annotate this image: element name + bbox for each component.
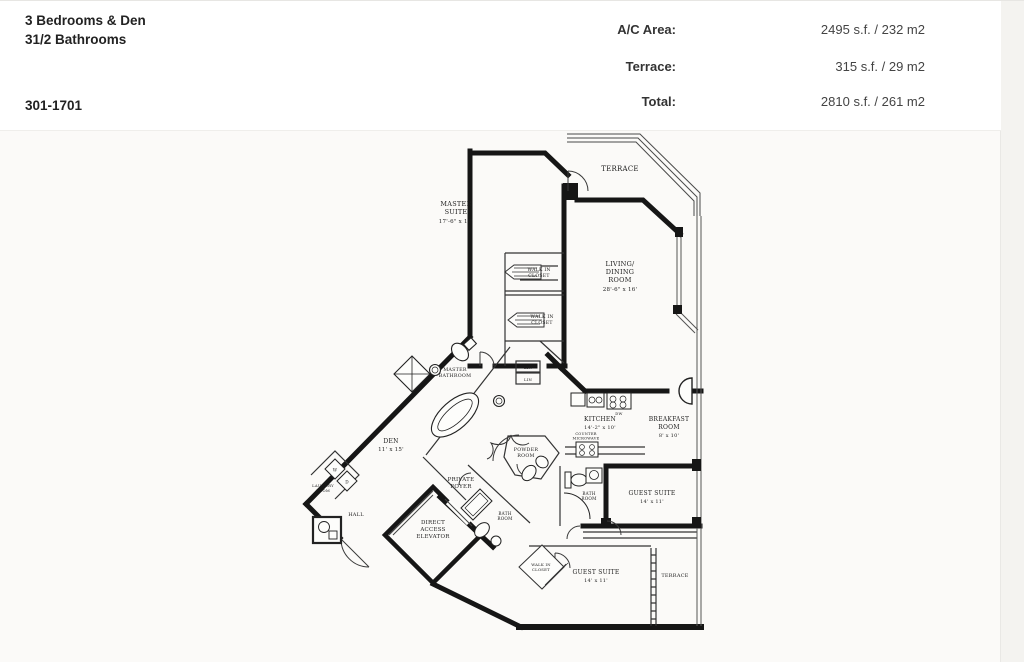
label-guest-suite-2: GUEST SUITE (573, 569, 620, 576)
label-elevator: ACCESS (419, 527, 445, 533)
stat-value: 2810 s.f. / 261 m2 (695, 94, 925, 109)
plan-header: 3 Bedrooms & Den 31/2 Bathrooms 301-1701… (0, 1, 1001, 131)
label-linen-1: LIN (524, 365, 533, 370)
plan-title: 3 Bedrooms & Den 31/2 Bathrooms (25, 11, 146, 49)
label-private-foyer: FOYER (450, 484, 472, 490)
label-breakfast-room: BREAKFAST (649, 416, 689, 423)
floorplan-page: 3 Bedrooms & Den 31/2 Bathrooms 301-1701… (0, 0, 1024, 661)
label-living-dining-dims: 28'-6" x 16' (603, 287, 638, 293)
label-terrace-top: TERRACE (601, 165, 639, 173)
label-walk-in-closet-1: CLOSET (528, 273, 550, 279)
stat-row-ac-area: A/C Area: 2495 s.f. / 232 m2 (540, 22, 925, 40)
label-master-suite: MASTER (440, 200, 472, 208)
unit-range: 301-1701 (25, 98, 82, 113)
label-walk-in-closet-3: CLOSET (532, 567, 550, 572)
label-master-bathroom: BATHROOM (439, 373, 472, 379)
label-washer: W (333, 468, 338, 473)
label-counter-microwave: MICROWAVE (573, 437, 600, 441)
exterior-walls (306, 151, 701, 627)
stat-label: A/C Area: (540, 22, 676, 37)
closet-door-arrows (505, 265, 568, 589)
label-living-dining: LIVING/ (606, 260, 636, 268)
label-terrace-bottom: TERRACE (661, 573, 688, 579)
label-master-suite-dims: 17'-6" x 17' (439, 219, 474, 225)
breakfast-column (679, 378, 692, 404)
label-den-dims: 11' x 15' (378, 447, 404, 453)
label-walk-in-closet-2: CLOSET (531, 320, 553, 326)
master-bathroom-fixtures (394, 338, 505, 445)
label-dishwasher: DW (615, 411, 622, 416)
label-laundry-room: ROOM (316, 488, 330, 493)
label-guest-suite-1-dims: 14' x 11' (640, 499, 664, 505)
label-kitchen-dims: 14'-2" x 10' (584, 425, 616, 431)
stat-row-total: Total: 2810 s.f. / 261 m2 (540, 94, 925, 112)
label-living-dining: DINING (606, 268, 634, 276)
label-elevator: ELEVATOR (416, 534, 450, 540)
label-counter-microwave: COUNTER (575, 432, 596, 436)
label-private-foyer: PRIVATE (448, 477, 475, 483)
stat-row-terrace: Terrace: 315 s.f. / 29 m2 (540, 59, 925, 77)
label-hall: HALL (348, 512, 364, 518)
label-bath-room-2: ROOM (581, 496, 597, 501)
page-right-margin (1000, 1, 1024, 662)
label-breakfast-room: ROOM (658, 424, 680, 431)
stat-value: 315 s.f. / 29 m2 (695, 59, 925, 74)
label-den: DEN (383, 438, 398, 445)
label-powder-room: POWDER (514, 447, 539, 453)
floorplan-drawing: TERRACE MASTER SUITE 17'-6" x 17' LIVING… (283, 123, 708, 648)
label-walk-in-closet-2: WALK IN (530, 314, 553, 320)
terrace-top-railing (567, 134, 700, 216)
label-dryer: D (345, 480, 349, 485)
label-master-suite: SUITE (445, 208, 468, 216)
stat-label: Terrace: (540, 59, 676, 74)
label-elevator: DIRECT (421, 520, 445, 526)
plan-title-line1: 3 Bedrooms & Den (25, 11, 146, 30)
stat-value: 2495 s.f. / 232 m2 (695, 22, 925, 37)
label-kitchen: KITCHEN (584, 416, 616, 423)
label-powder-room: ROOM (517, 453, 534, 459)
label-breakfast-room-dims: 8' x 10' (659, 433, 679, 439)
label-bath-room-1: ROOM (497, 516, 513, 521)
label-guest-suite-1: GUEST SUITE (629, 490, 676, 497)
label-master-bathroom: MASTER (443, 367, 467, 373)
label-guest-suite-2-dims: 14' x 11' (584, 578, 608, 584)
label-living-dining: ROOM (608, 276, 631, 284)
plan-title-line2: 31/2 Bathrooms (25, 30, 146, 49)
label-walk-in-closet-1: WALK IN (527, 267, 550, 273)
stat-label: Total: (540, 94, 676, 109)
label-linen-2: LIN (524, 377, 533, 382)
